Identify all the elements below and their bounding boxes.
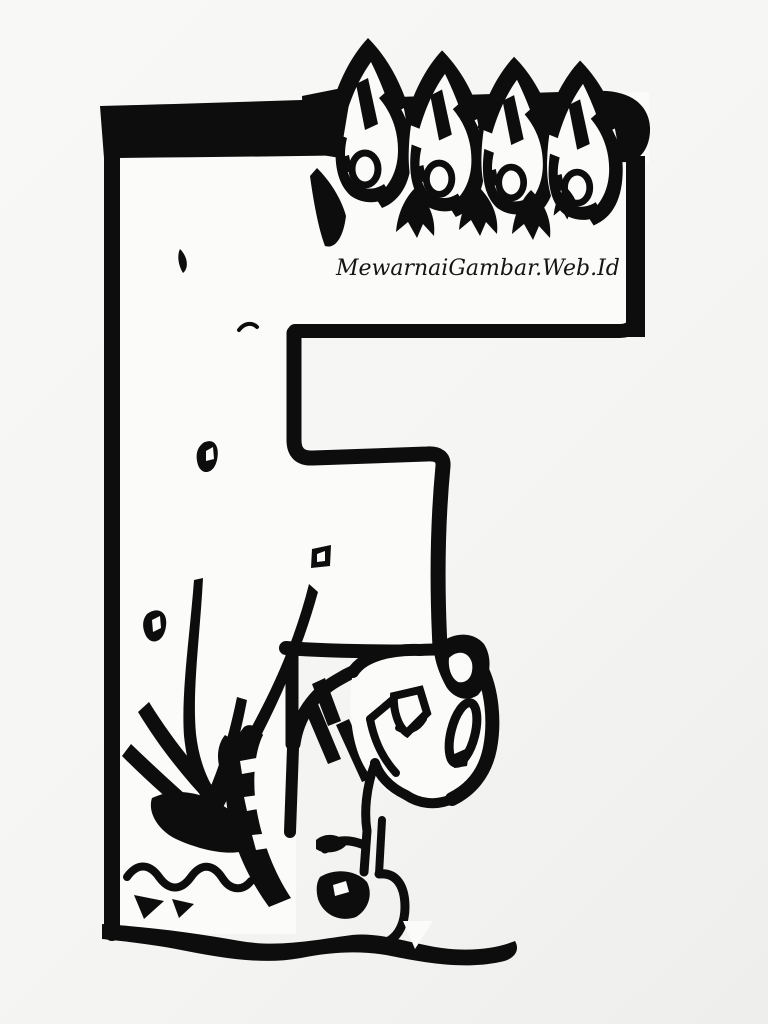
watermark-text: MewarnaiGambar.Web.Id [336, 256, 616, 281]
coloring-page: MewarnaiGambar.Web.Id [0, 0, 768, 1024]
letter-f-illustration [0, 0, 768, 1024]
kitten-paw [317, 871, 370, 919]
kitten-front-leg-back [379, 820, 382, 874]
kitten-tail-stripe-3 [252, 833, 276, 850]
flame-ornament-4 [543, 61, 623, 226]
kitten-front-leg [364, 831, 367, 872]
kitten-foot-outline [379, 874, 405, 941]
ground-band-shape [102, 924, 517, 965]
flame-ornament-3 [478, 57, 557, 220]
kitten-body-left-edge [290, 748, 293, 832]
top-flame-ornaments [302, 38, 623, 225]
kitten-chest [366, 763, 375, 831]
